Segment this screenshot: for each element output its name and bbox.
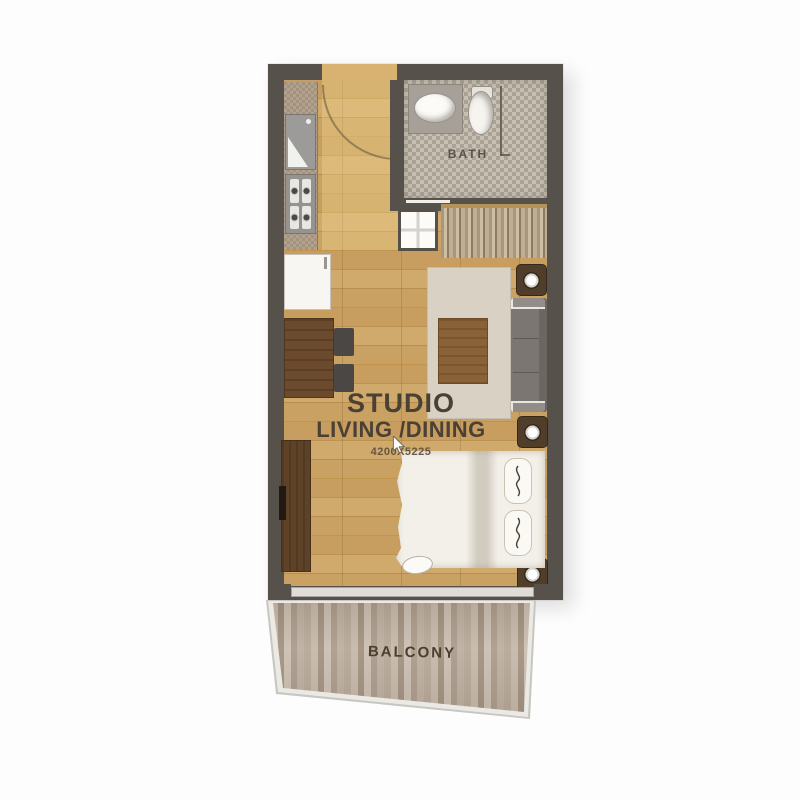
sliding-glass-door [291, 587, 534, 597]
balcony-room-label: BALCONY [332, 642, 492, 662]
sofa-armrest [511, 298, 545, 309]
fridge-handle [324, 257, 327, 269]
bath-room-label: BATH [418, 147, 518, 161]
toilet-icon [469, 92, 493, 134]
burner-icon [290, 179, 299, 203]
burner-icon [302, 206, 311, 230]
plant-pot-icon [517, 416, 548, 448]
dining-table [284, 318, 334, 398]
stove-icon [285, 174, 316, 234]
blanket-fold [466, 451, 498, 568]
balcony-area: BALCONY [264, 600, 540, 722]
entry-door-opening [322, 64, 397, 80]
cabinet-handle [279, 486, 286, 520]
plant-icon [524, 566, 541, 583]
sofa [511, 298, 547, 412]
sofa-cushion-line [513, 338, 539, 339]
room-title: STUDIO [301, 388, 501, 419]
mouse-cursor-icon [391, 436, 407, 454]
closet-hanging-area [441, 204, 547, 258]
pillow-squiggle-icon [511, 516, 525, 550]
washing-machine-icon [398, 209, 438, 251]
sink-basin-shape [288, 137, 308, 167]
kitchen-sink-icon [285, 114, 316, 170]
pillow-icon [504, 458, 532, 504]
bathroom-door-threshold [406, 200, 450, 203]
coffee-table [438, 318, 488, 384]
floor-plan-unit: BATH STUD [268, 64, 563, 600]
sofa-cushion-line [513, 372, 539, 373]
sofa-backrest [539, 298, 547, 412]
pillow-squiggle-icon [511, 464, 525, 498]
pillow-icon [504, 510, 532, 556]
plant-icon [523, 272, 540, 289]
shower-partition [500, 86, 502, 156]
bottom-wall-left [268, 584, 291, 600]
plant-pot-icon [516, 264, 547, 296]
bottom-wall-right [534, 584, 563, 600]
burner-icon [302, 179, 311, 203]
bathroom-sink-icon [415, 94, 455, 122]
sofa-armrest [511, 401, 545, 412]
burner-icon [290, 206, 299, 230]
plant-icon [524, 424, 541, 441]
faucet-icon [306, 119, 311, 124]
dining-chair [334, 328, 354, 356]
fridge-icon [284, 254, 331, 310]
bathroom-vanity [408, 84, 463, 134]
